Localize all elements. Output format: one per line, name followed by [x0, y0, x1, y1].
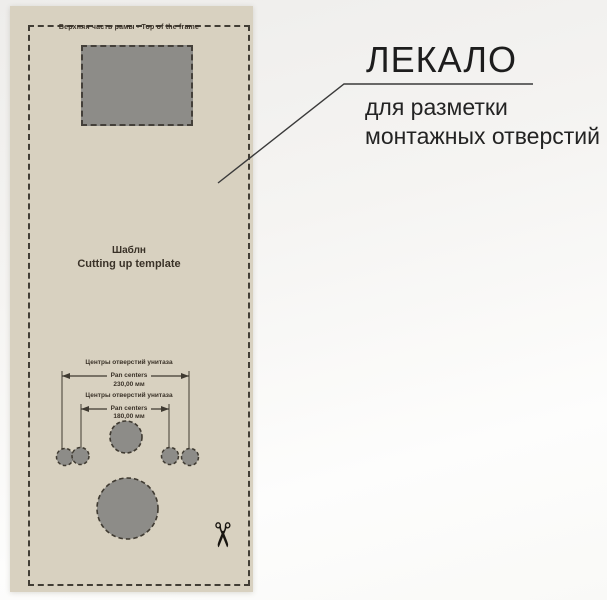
dim1-label-ru: Центры отверстий унитаза — [18, 359, 240, 367]
dim2-label-en-text: Pan centers — [107, 405, 152, 412]
template-name-ru: Шаблн — [18, 245, 240, 256]
scissors-icon: ✂ — [204, 521, 238, 550]
callout-title: ЛЕКАЛО — [366, 42, 517, 78]
top-of-frame-label: Верхняя часть рамы - Top of the frame — [18, 24, 240, 31]
callout-subtitle-line1: для разметки — [365, 93, 600, 122]
label-layer: Верхняя часть рамы - Top of the frame Ша… — [0, 0, 607, 600]
product-image: Верхняя часть рамы - Top of the frame Ша… — [0, 0, 607, 600]
dim2-label-en: Pan centers — [18, 405, 240, 413]
dim1-value: 230,00 мм — [18, 381, 240, 389]
dim2-value: 180,00 мм — [18, 413, 240, 421]
callout-subtitle: для разметки монтажных отверстий — [365, 93, 600, 151]
dim2-label-ru: Центры отверстий унитаза — [18, 392, 240, 400]
dim1-label-en-text: Pan centers — [107, 372, 152, 379]
callout-subtitle-line2: монтажных отверстий — [365, 122, 600, 151]
template-name-en: Cutting up template — [18, 258, 240, 270]
dim1-label-en: Pan centers — [18, 372, 240, 380]
